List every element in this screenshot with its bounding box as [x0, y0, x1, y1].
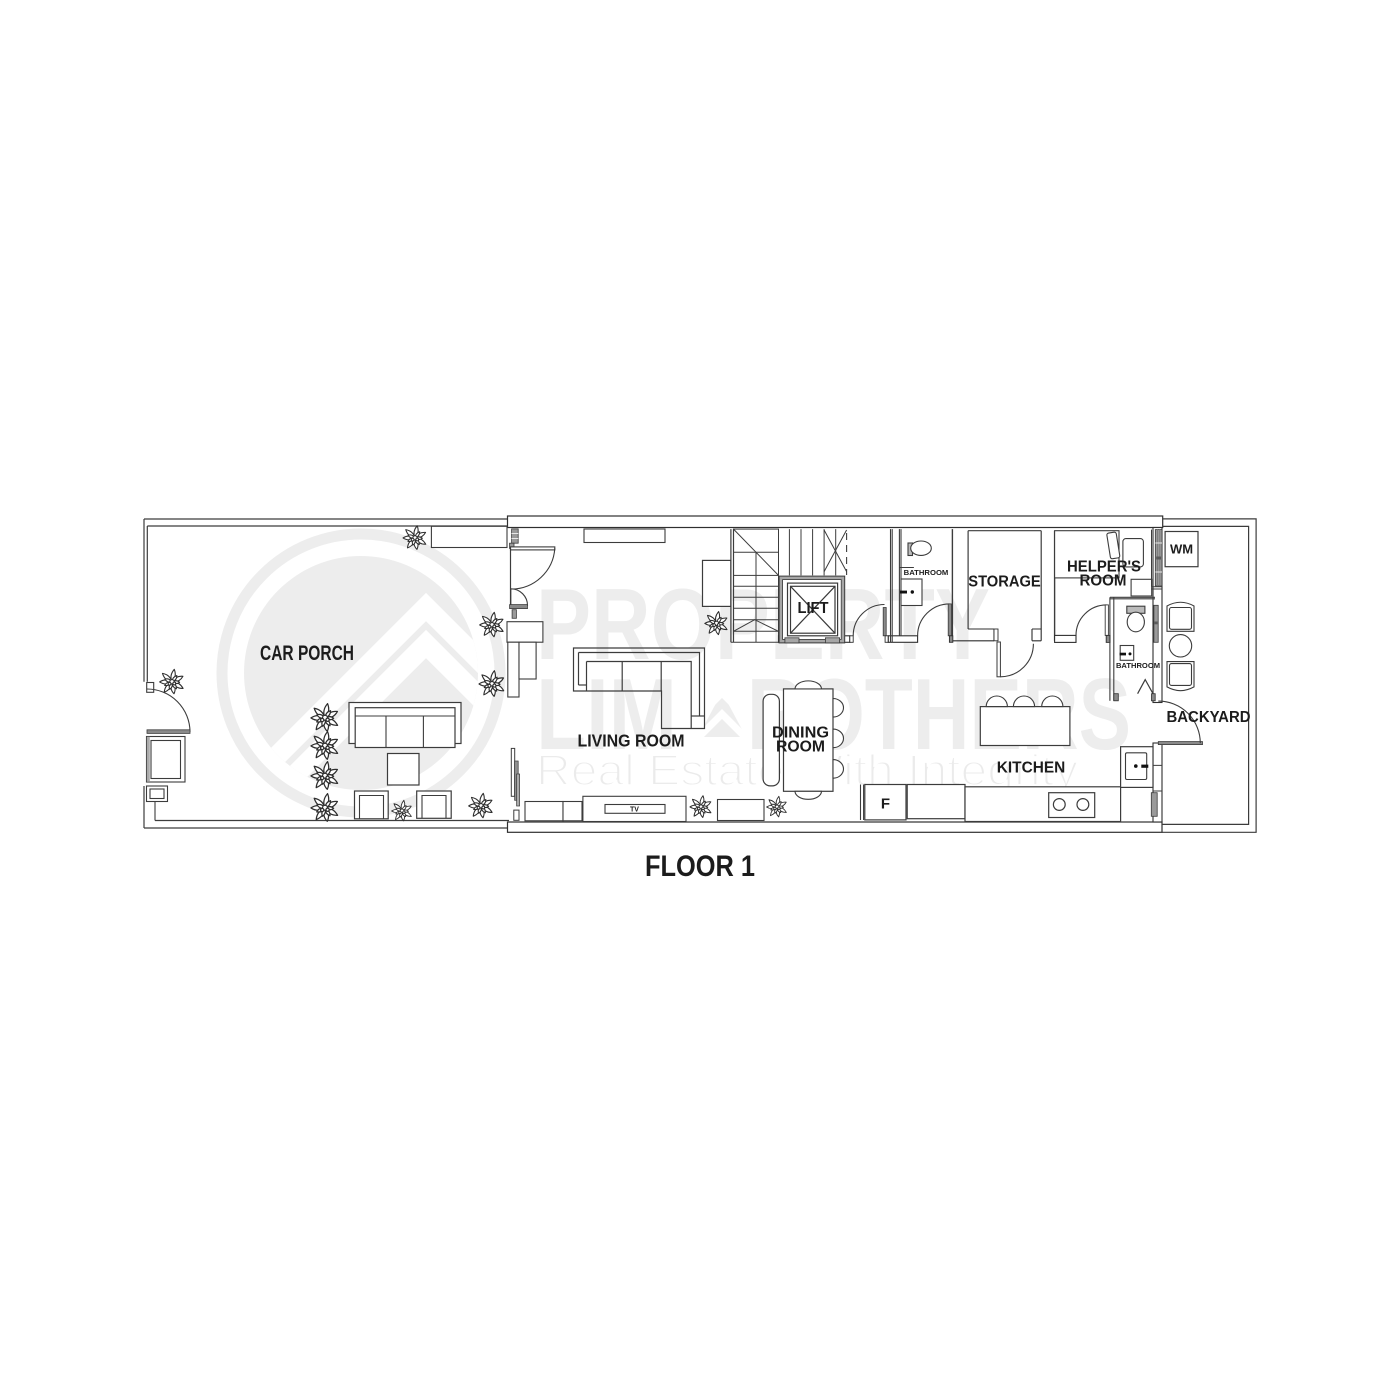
svg-text:CAR PORCH: CAR PORCH [260, 642, 354, 665]
svg-text:BATHROOM: BATHROOM [1116, 661, 1160, 670]
svg-text:BACKYARD: BACKYARD [1167, 709, 1251, 726]
svg-text:STORAGE: STORAGE [968, 573, 1041, 590]
svg-text:F: F [881, 796, 890, 813]
svg-text:WM: WM [1170, 542, 1193, 557]
svg-text:ROOM: ROOM [776, 739, 825, 756]
svg-text:LIFT: LIFT [798, 600, 829, 617]
svg-text:ROOM: ROOM [1080, 572, 1127, 589]
svg-text:BATHROOM: BATHROOM [904, 568, 949, 577]
svg-text:LIVING ROOM: LIVING ROOM [578, 731, 685, 751]
svg-text:TV: TV [630, 807, 639, 814]
svg-text:FLOOR 1: FLOOR 1 [645, 850, 755, 883]
svg-text:KITCHEN: KITCHEN [997, 760, 1066, 777]
